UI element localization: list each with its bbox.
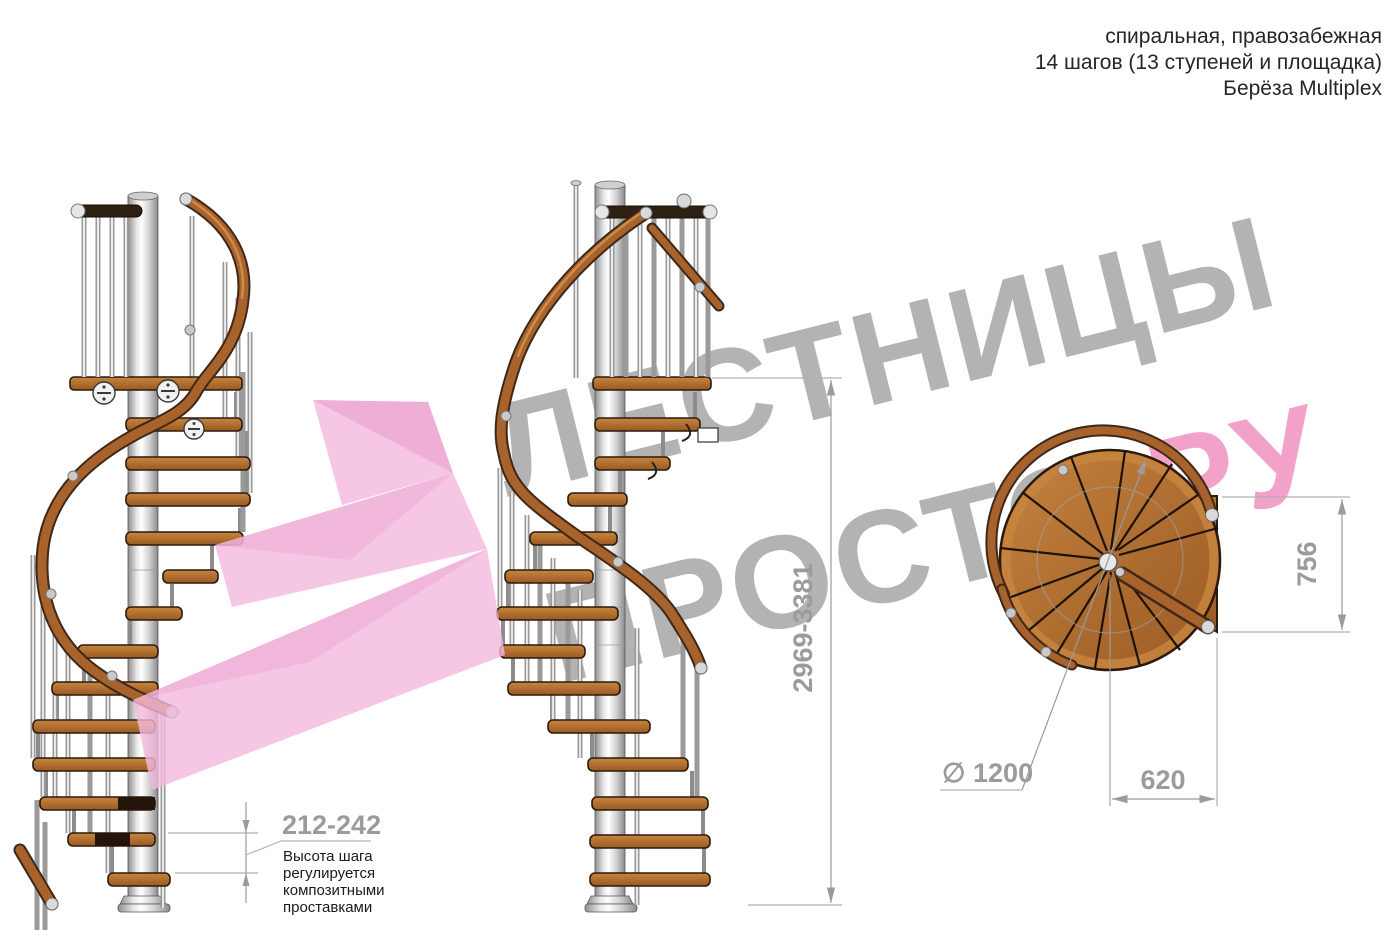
center-elevation-view xyxy=(497,181,719,913)
step-height-label: 212-242 xyxy=(282,810,381,840)
step-height-note-4: проставками xyxy=(283,899,372,916)
step-height-note-1: Высота шага xyxy=(283,848,373,865)
dimension-step-height: 212-242 Высота шага регулируется компози… xyxy=(168,802,385,916)
dimension-total-height: 2969-3381 xyxy=(712,378,842,905)
title-type: спиральная, правозабежная xyxy=(1035,24,1382,50)
total-height-label: 2969-3381 xyxy=(788,563,818,692)
dimension-landing-depth: 756 xyxy=(1222,497,1350,632)
drawing-sheet: ЛЕСТНИЦЫ ПРОСТО.РУ xyxy=(0,0,1400,942)
step-height-note-2: регулируется xyxy=(283,865,375,882)
title-block: спиральная, правозабежная 14 шагов (13 с… xyxy=(1035,24,1382,102)
landing-depth-label: 756 xyxy=(1292,541,1322,586)
left-elevation-view xyxy=(20,192,250,930)
plan-view xyxy=(991,430,1220,670)
staircase-drawing: 2969-3381 212-242 Высота шага регулирует… xyxy=(0,0,1400,942)
title-material: Берёза Multiplex xyxy=(1035,76,1382,102)
landing-width-label: 620 xyxy=(1140,765,1185,795)
diameter-label: ∅ 1200 xyxy=(942,758,1033,788)
title-steps: 14 шагов (13 ступеней и площадка) xyxy=(1035,50,1382,76)
step-height-note-3: композитными xyxy=(283,882,385,899)
